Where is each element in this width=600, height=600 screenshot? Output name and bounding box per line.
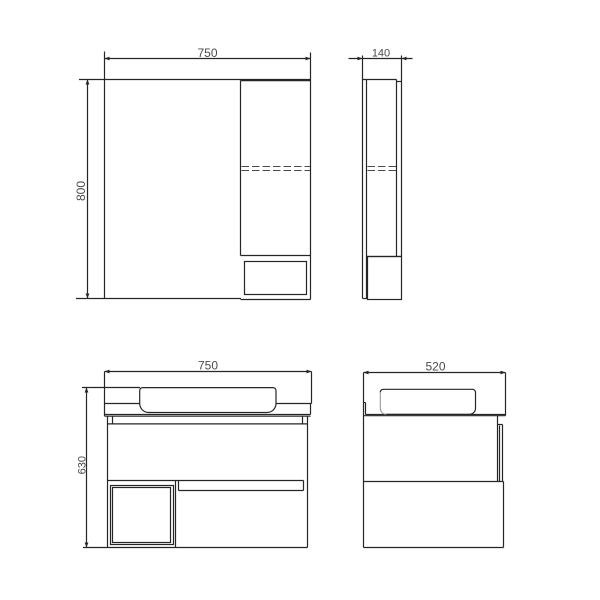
svg-text:750: 750 xyxy=(198,358,218,372)
svg-text:140: 140 xyxy=(372,48,390,60)
svg-text:630: 630 xyxy=(77,456,89,474)
svg-text:520: 520 xyxy=(425,360,445,374)
svg-text:750: 750 xyxy=(197,46,217,60)
svg-text:800: 800 xyxy=(74,181,88,201)
